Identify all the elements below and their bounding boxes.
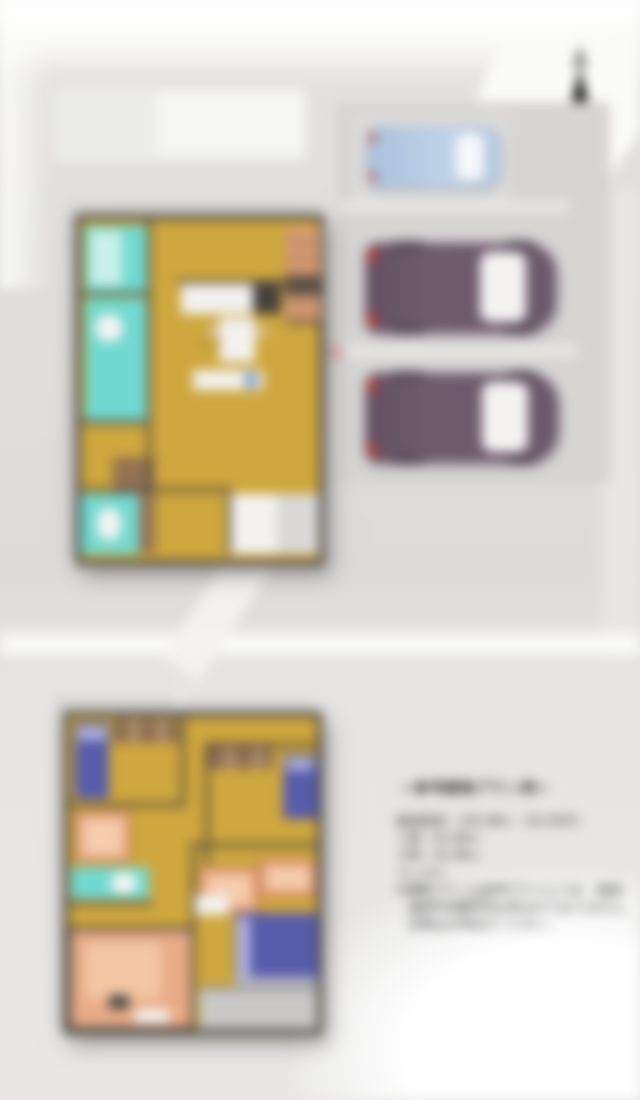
rug-inner (85, 821, 121, 853)
small-table (109, 995, 129, 1009)
wall (69, 901, 153, 905)
pillow (237, 917, 250, 979)
wall (205, 743, 317, 747)
rug-inner (85, 943, 161, 999)
wall (81, 292, 147, 296)
cushion (245, 372, 257, 388)
plan-text-line: １階：52.99㎡ (396, 829, 588, 846)
plan-text-line: ２階：52.99㎡ (396, 846, 588, 863)
tail-light (368, 249, 377, 262)
wash-vanity (71, 867, 149, 899)
chair (257, 326, 266, 338)
bathtub (91, 232, 121, 284)
washing-machine (95, 314, 123, 342)
plan-text-line: 建物面積：105.98㎡（32.05坪） (396, 812, 588, 829)
wall (147, 220, 151, 490)
tail-light (370, 172, 376, 181)
tail-light (368, 313, 377, 326)
car-wheel (506, 241, 534, 248)
plan-text-line: 詳細はお問合せください。 (396, 915, 588, 932)
kitchen-counter (181, 284, 255, 314)
middle-road-band (0, 626, 640, 662)
wall (81, 488, 229, 492)
car-wheel (392, 241, 424, 248)
car-wheel (506, 327, 534, 334)
tail-light (368, 443, 377, 456)
car-wheel (392, 371, 424, 378)
balcony-rail (199, 986, 317, 990)
scene-canvas: LDK (0, 0, 640, 1100)
second-floor-plan (64, 712, 322, 1034)
blurred-scene: LDK (0, 0, 640, 1100)
car-windshield (482, 382, 528, 452)
pillow (78, 727, 106, 740)
wall (227, 488, 231, 554)
pillow (286, 759, 314, 770)
stall-divider-2 (340, 341, 576, 361)
light-blue-car (368, 127, 500, 187)
closet-top-left (113, 719, 179, 743)
bed-top-left (75, 723, 109, 799)
purple-car-2 (366, 373, 558, 462)
car-windshield (456, 134, 484, 180)
wall (181, 717, 185, 805)
genkan-floor (277, 494, 319, 554)
plan-text-line: ※掲載プランは参考プランにつき、建築 (396, 881, 588, 898)
wall (81, 420, 147, 424)
closet-top-right (209, 747, 273, 769)
room-bottom-left (69, 929, 193, 1029)
bed-bottom-right (235, 913, 317, 985)
yard-white-patch (158, 92, 306, 154)
shoe-cabinet (285, 276, 321, 296)
sofa (193, 370, 263, 390)
wall (69, 803, 185, 807)
plan-text-line: 確認申請費用等は含まれておりません。 (396, 898, 588, 915)
plan-text-line: ４ＬＤＫ (396, 864, 588, 881)
first-floor-plan: LDK (76, 215, 324, 565)
car-wheel (392, 457, 424, 464)
stall-divider-1 (340, 198, 568, 216)
balcony (199, 989, 317, 1029)
refrigerator (253, 284, 281, 314)
entrance-hall (229, 494, 277, 554)
purple-car-1 (366, 243, 556, 332)
left-road-highlight (0, 38, 52, 288)
desk-center (191, 895, 229, 915)
plan-panel-text: 建物面積：105.98㎡（32.05坪） １階：52.99㎡ ２階：52.99㎡… (396, 812, 588, 932)
rug-inner (269, 869, 307, 887)
wall (285, 320, 321, 324)
tail-light (368, 379, 377, 392)
bed-top-right (283, 755, 317, 819)
entrance-marker (325, 344, 345, 360)
bathroom (85, 226, 147, 292)
desk-bottom-left (135, 1009, 169, 1023)
wall (191, 843, 317, 847)
rug-right (259, 859, 317, 897)
rug-middle-left (75, 811, 131, 863)
toilet (97, 508, 121, 540)
entry-steps (285, 228, 321, 320)
tail-light (370, 133, 376, 142)
bed-foot (235, 977, 317, 986)
car-wheel (508, 457, 536, 464)
wall (177, 280, 285, 284)
ldk-room-label: LDK (199, 338, 224, 351)
washroom (85, 298, 147, 424)
car-wheel (392, 327, 424, 334)
car-windshield (480, 252, 526, 322)
plan-panel-title: ＜参考建物プラン例＞ (400, 779, 580, 797)
balcony-hatch-1 (60, 694, 180, 712)
sink (111, 873, 137, 893)
screenshot-frame: LDK (0, 0, 640, 1100)
dining-table (219, 318, 255, 362)
car-wheel (508, 371, 536, 378)
chair (209, 326, 218, 338)
toilet-room (81, 494, 139, 554)
